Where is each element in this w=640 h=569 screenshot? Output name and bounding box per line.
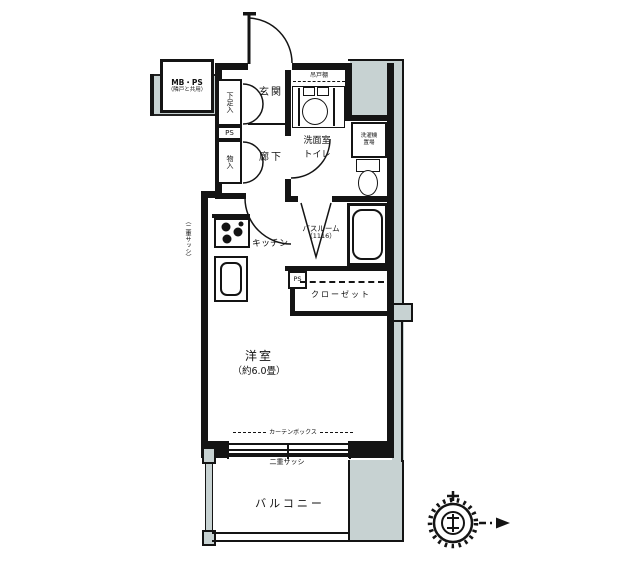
floor-plan: MB・PS （隣戸と共用） 下足入 PS 物入 吊戸棚 洗濯機 置場 <box>0 0 640 569</box>
bathroom-folding-door <box>301 203 331 257</box>
shoe-cabinet-door-arc <box>243 84 263 104</box>
storage-door-arc <box>243 162 263 183</box>
washroom-door-arc <box>291 139 330 178</box>
entrance-door-arc <box>249 18 292 63</box>
shoe-cabinet-door-arc <box>243 104 263 124</box>
entrance-door-hinge-cap <box>243 12 256 16</box>
room-entry-door-arc <box>245 198 291 244</box>
storage-door-arc <box>243 142 263 162</box>
compass-icon <box>418 485 518 565</box>
door-swing-overlay <box>0 0 640 569</box>
